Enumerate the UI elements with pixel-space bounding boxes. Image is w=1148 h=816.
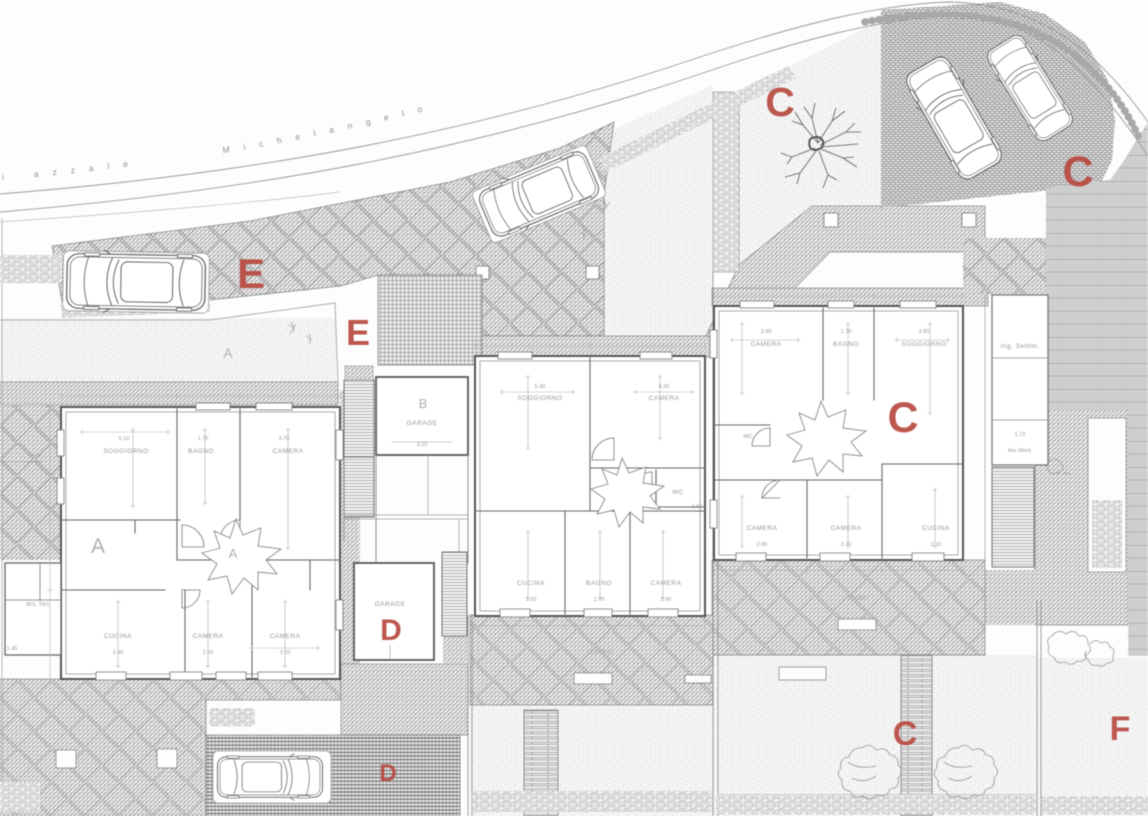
svg-text:C: C: [887, 394, 918, 442]
svg-text:dis.Tec: dis.Tec: [26, 601, 50, 608]
svg-text:1.75: 1.75: [198, 436, 209, 442]
svg-text:C: C: [893, 715, 918, 753]
svg-text:A: A: [223, 345, 233, 361]
svg-text:CAMERA: CAMERA: [751, 341, 782, 348]
svg-text:BAGNO: BAGNO: [188, 448, 214, 455]
svg-text:B: B: [419, 396, 428, 411]
svg-text:C: C: [765, 79, 795, 125]
svg-text:CUCINA: CUCINA: [922, 525, 950, 532]
svg-text:Giardino: Giardino: [587, 649, 614, 656]
svg-text:BAGNO: BAGNO: [586, 580, 612, 587]
svg-text:5.40: 5.40: [535, 384, 546, 390]
svg-text:GARAGE: GARAGE: [407, 420, 438, 427]
svg-text:CAMERA: CAMERA: [831, 525, 862, 532]
svg-text:INC: INC: [743, 434, 753, 440]
svg-text:D: D: [380, 614, 402, 647]
svg-text:SOGGIORNO: SOGGIORNO: [103, 448, 148, 455]
svg-text:3.10: 3.10: [931, 542, 942, 548]
svg-text:SOGGIORNO: SOGGIORNO: [517, 395, 562, 402]
svg-text:3.70: 3.70: [841, 542, 852, 548]
svg-text:A: A: [229, 546, 238, 561]
svg-text:CAMERA: CAMERA: [649, 395, 680, 402]
svg-text:A: A: [91, 535, 105, 558]
svg-text:1.45: 1.45: [7, 646, 18, 652]
svg-text:5.10: 5.10: [119, 436, 130, 442]
svg-text:E: E: [237, 250, 265, 297]
svg-text:3.90: 3.90: [761, 329, 772, 335]
svg-text:BAGNO: BAGNO: [833, 341, 859, 348]
svg-text:1.90: 1.90: [692, 504, 703, 510]
svg-text:C: C: [1062, 148, 1093, 196]
svg-text:D: D: [379, 760, 396, 787]
svg-text:GARAGE: GARAGE: [375, 601, 406, 608]
svg-text:3.80: 3.80: [919, 329, 930, 335]
svg-text:CAMERA: CAMERA: [747, 525, 778, 532]
svg-text:1.73: 1.73: [1015, 432, 1026, 438]
svg-text:CAMERA: CAMERA: [651, 580, 682, 587]
svg-text:2.90: 2.90: [757, 542, 768, 548]
svg-text:Andito: Andito: [848, 595, 868, 602]
svg-text:Asc.Mont.: Asc.Mont.: [1008, 448, 1033, 454]
svg-text:E: E: [346, 312, 370, 353]
svg-text:WC: WC: [672, 489, 684, 496]
svg-text:CUCINA: CUCINA: [517, 580, 545, 587]
svg-text:3.22: 3.22: [417, 442, 428, 448]
svg-text:SOGGIORNO: SOGGIORNO: [901, 341, 946, 348]
svg-text:Ing. Settim.: Ing. Settim.: [1001, 343, 1040, 350]
svg-text:1.70: 1.70: [841, 329, 852, 335]
svg-text:F: F: [1110, 710, 1131, 748]
